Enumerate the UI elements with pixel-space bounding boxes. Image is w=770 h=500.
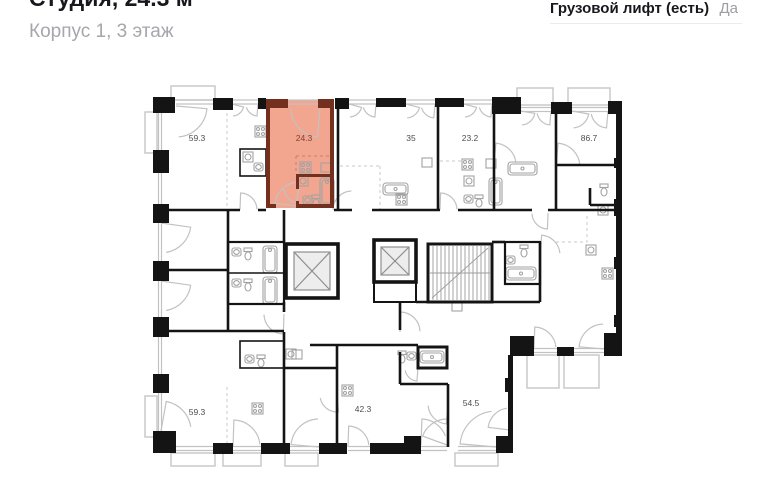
bathtub-icon	[385, 185, 406, 193]
bathtub-drain-icon	[521, 167, 524, 170]
door-arc	[572, 111, 589, 128]
stove-burner-icon	[469, 161, 472, 164]
bathtub-icon	[508, 269, 534, 278]
door-arc	[406, 104, 420, 118]
stove-burner-icon	[604, 270, 607, 273]
elevator-icon	[286, 244, 338, 298]
stove-burner-icon	[609, 275, 612, 278]
bathtub-drain-icon	[269, 280, 272, 283]
stove-burner-icon	[259, 405, 262, 408]
door-arc	[534, 327, 556, 349]
door-arc	[460, 411, 496, 447]
stove-burner-icon	[604, 275, 607, 278]
stove-burner-icon	[403, 201, 406, 204]
sink-icon	[234, 250, 240, 255]
stove-burner-icon	[464, 161, 467, 164]
toilet-icon	[600, 184, 608, 188]
sink-icon	[409, 354, 415, 359]
door-arc	[161, 402, 191, 432]
door-arc	[464, 104, 477, 117]
stove-burner-icon	[349, 392, 352, 395]
door-arc	[591, 111, 608, 128]
stove-burner-icon	[469, 166, 472, 169]
door-arc	[537, 111, 551, 125]
stove-burner-icon	[464, 166, 467, 169]
door-arc	[579, 324, 604, 349]
stove-burner-icon	[344, 392, 347, 395]
toilet-icon	[245, 283, 251, 291]
door-arc	[521, 111, 535, 125]
cabinet-icon	[422, 158, 432, 167]
door-arc	[405, 368, 418, 381]
bathtub-drain-icon	[269, 249, 272, 252]
stove-burner-icon	[403, 196, 406, 199]
stove-burner-icon	[609, 270, 612, 273]
stove-burner-icon	[262, 128, 265, 131]
floor-plan: 59.3 24.3 35 23.2 86.7 59.3 42.3 54.5	[0, 0, 770, 500]
door-arc	[349, 104, 362, 117]
door-arc	[540, 235, 560, 255]
unit-label-42-3: 42.3	[355, 404, 372, 414]
bathtub-drain-icon	[394, 188, 397, 191]
door-arc	[161, 223, 191, 253]
toilet-icon	[258, 359, 264, 367]
unit-label-59-3-bottom: 59.3	[189, 407, 206, 417]
door-arc	[348, 426, 369, 447]
door-arc	[246, 104, 258, 116]
toilet-icon	[244, 248, 252, 252]
bathtub-drain-icon	[520, 272, 523, 275]
door-arc	[479, 104, 492, 117]
washer-icon	[245, 154, 251, 160]
selected-unit[interactable]	[266, 100, 334, 208]
stove-burner-icon	[398, 201, 401, 204]
unit-label-35: 35	[406, 133, 416, 143]
bathtub-icon	[422, 353, 442, 361]
stove-burner-icon	[344, 387, 347, 390]
elevator-icon	[374, 240, 416, 302]
unit-label-54-5: 54.5	[463, 398, 480, 408]
stove-burner-icon	[262, 133, 265, 136]
unit-label-24-3: 24.3	[296, 133, 313, 143]
sink-icon	[234, 281, 240, 286]
unit-label-59-3-top: 59.3	[189, 133, 206, 143]
door-arc	[233, 420, 260, 447]
toilet-icon	[601, 188, 607, 196]
sink-icon	[466, 197, 472, 202]
interior-walls	[156, 106, 617, 447]
stove-burner-icon	[257, 133, 260, 136]
door-arc	[240, 193, 257, 210]
door-arc	[440, 193, 457, 210]
door-arc	[232, 104, 244, 116]
stove-burner-icon	[398, 196, 401, 199]
door-arc	[422, 104, 436, 118]
stove-burner-icon	[254, 410, 257, 413]
sink-icon	[247, 357, 253, 362]
toilet-icon	[476, 199, 482, 207]
door-arc	[556, 143, 580, 167]
toilet-icon	[475, 195, 483, 199]
stove-burner-icon	[349, 387, 352, 390]
stove-burner-icon	[257, 128, 260, 131]
sink-icon	[508, 258, 514, 263]
bathtub-drain-icon	[431, 356, 434, 359]
toilet-icon	[520, 245, 528, 249]
door-arc	[333, 191, 352, 210]
door-arc	[161, 281, 191, 311]
bathtub-icon	[510, 164, 535, 173]
sink-icon	[256, 165, 262, 170]
toilet-icon	[245, 252, 251, 260]
unit-label-23-2: 23.2	[462, 133, 479, 143]
door-arc	[400, 312, 420, 332]
toilet-icon	[521, 249, 527, 257]
washer-icon	[588, 247, 594, 253]
staircase-icon	[428, 244, 492, 302]
door-arc	[532, 213, 548, 229]
door-arc	[291, 419, 319, 447]
door-arc	[363, 104, 376, 117]
stove-burner-icon	[259, 410, 262, 413]
toilet-icon	[257, 355, 265, 359]
toilet-icon	[244, 279, 252, 283]
unit-label-86-7: 86.7	[581, 133, 598, 143]
washer-icon	[466, 178, 472, 184]
washer-icon	[288, 351, 294, 357]
stove-burner-icon	[254, 405, 257, 408]
